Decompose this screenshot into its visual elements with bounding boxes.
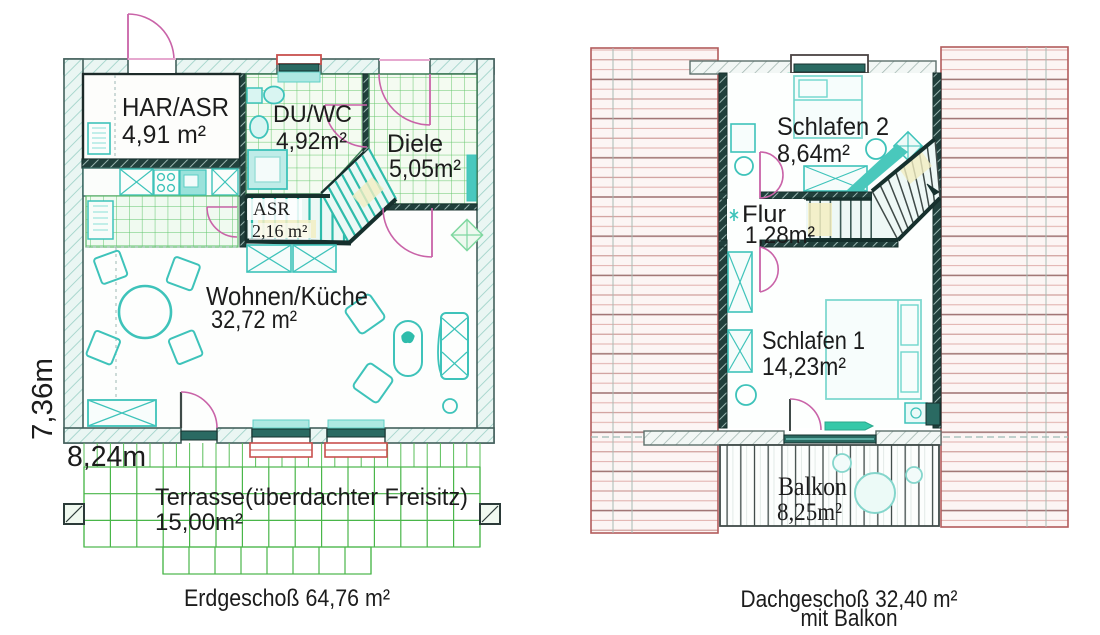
svg-text:HAR/ASR: HAR/ASR [122,92,229,122]
svg-text:DU/WC: DU/WC [273,101,352,128]
svg-text:Erdgeschoß 64,76 m²: Erdgeschoß 64,76 m² [184,585,390,612]
svg-text:14,23m²: 14,23m² [762,353,846,381]
svg-text:8,64m²: 8,64m² [777,140,850,168]
svg-text:Schlafen 2: Schlafen 2 [777,113,889,141]
svg-text:5,05m²: 5,05m² [389,155,461,183]
svg-text:Balkon: Balkon [778,472,847,501]
svg-text:8,24m: 8,24m [67,441,146,473]
svg-text:8,25m²: 8,25m² [777,499,842,526]
svg-text:mit Balkon: mit Balkon [801,605,898,630]
svg-text:Diele: Diele [387,130,443,158]
svg-text:Schlafen 1: Schlafen 1 [762,327,865,355]
svg-text:Terrasse(überdachter Freisitz): Terrasse(überdachter Freisitz) [155,484,468,511]
svg-text:7,36m: 7,36m [27,358,59,440]
svg-text:ASR: ASR [253,199,290,220]
svg-text:1,28m²: 1,28m² [745,222,815,249]
svg-text:4,92m²: 4,92m² [276,128,347,155]
svg-text:2,16 m²: 2,16 m² [252,221,307,241]
svg-text:4,91 m²: 4,91 m² [122,121,206,149]
svg-text:15,00m²: 15,00m² [155,509,243,536]
svg-text:32,72 m²: 32,72 m² [211,306,297,334]
